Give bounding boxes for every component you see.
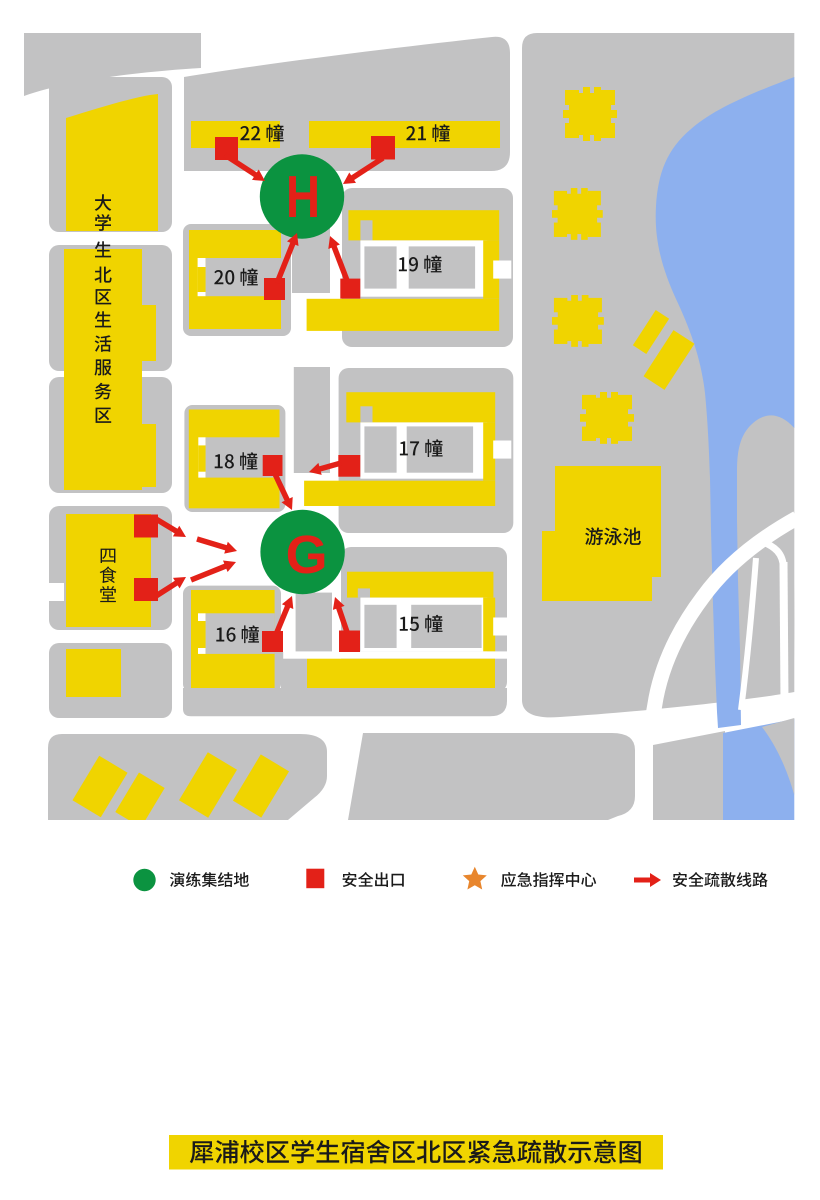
svg-text:G: G bbox=[286, 525, 328, 585]
svg-text:H: H bbox=[286, 165, 320, 230]
